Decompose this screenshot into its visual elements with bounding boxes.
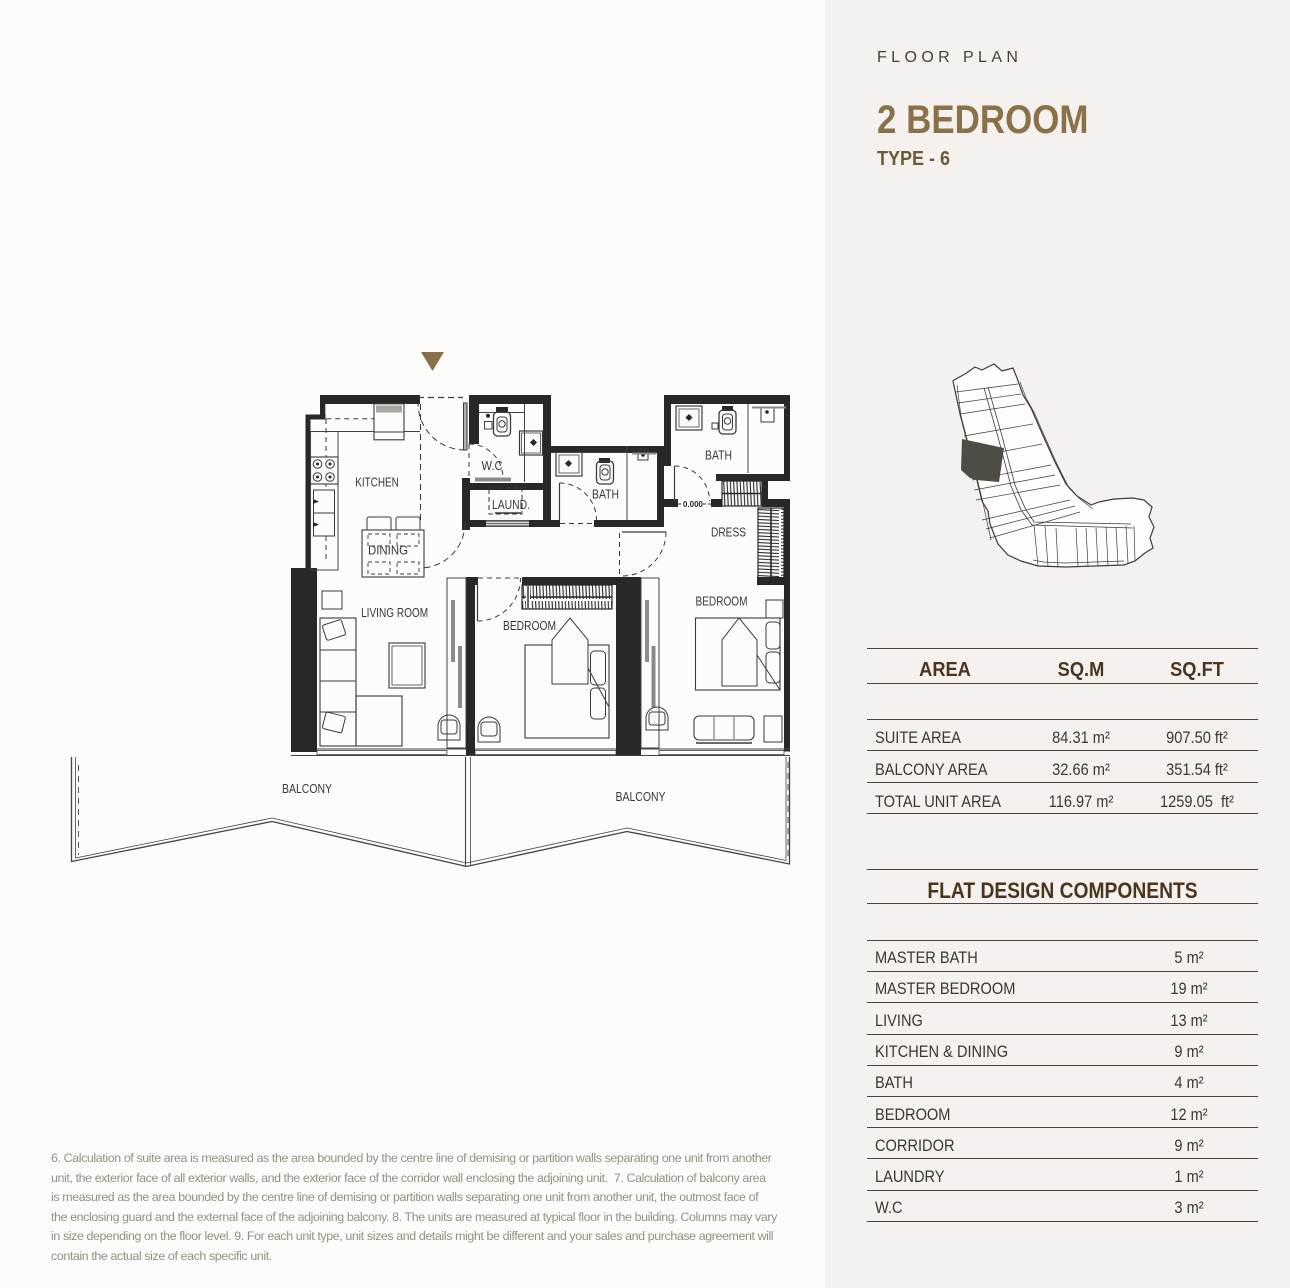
- svg-text:BATH: BATH: [705, 447, 732, 462]
- svg-text:W.C: W.C: [482, 458, 503, 473]
- svg-text:BALCONY: BALCONY: [616, 789, 666, 804]
- svg-text:BEDROOM: BEDROOM: [503, 618, 556, 633]
- svg-text:DINING: DINING: [368, 542, 408, 557]
- svg-text:0.000: 0.000: [683, 500, 704, 509]
- svg-text:LIVING ROOM: LIVING ROOM: [361, 605, 428, 620]
- svg-text:BALCONY: BALCONY: [282, 781, 332, 796]
- svg-text:KITCHEN: KITCHEN: [355, 475, 399, 490]
- svg-text:BEDROOM: BEDROOM: [696, 593, 748, 608]
- svg-text:LAUND.: LAUND.: [492, 497, 530, 512]
- svg-text:DRESS: DRESS: [711, 524, 746, 539]
- svg-text:BATH: BATH: [592, 486, 619, 501]
